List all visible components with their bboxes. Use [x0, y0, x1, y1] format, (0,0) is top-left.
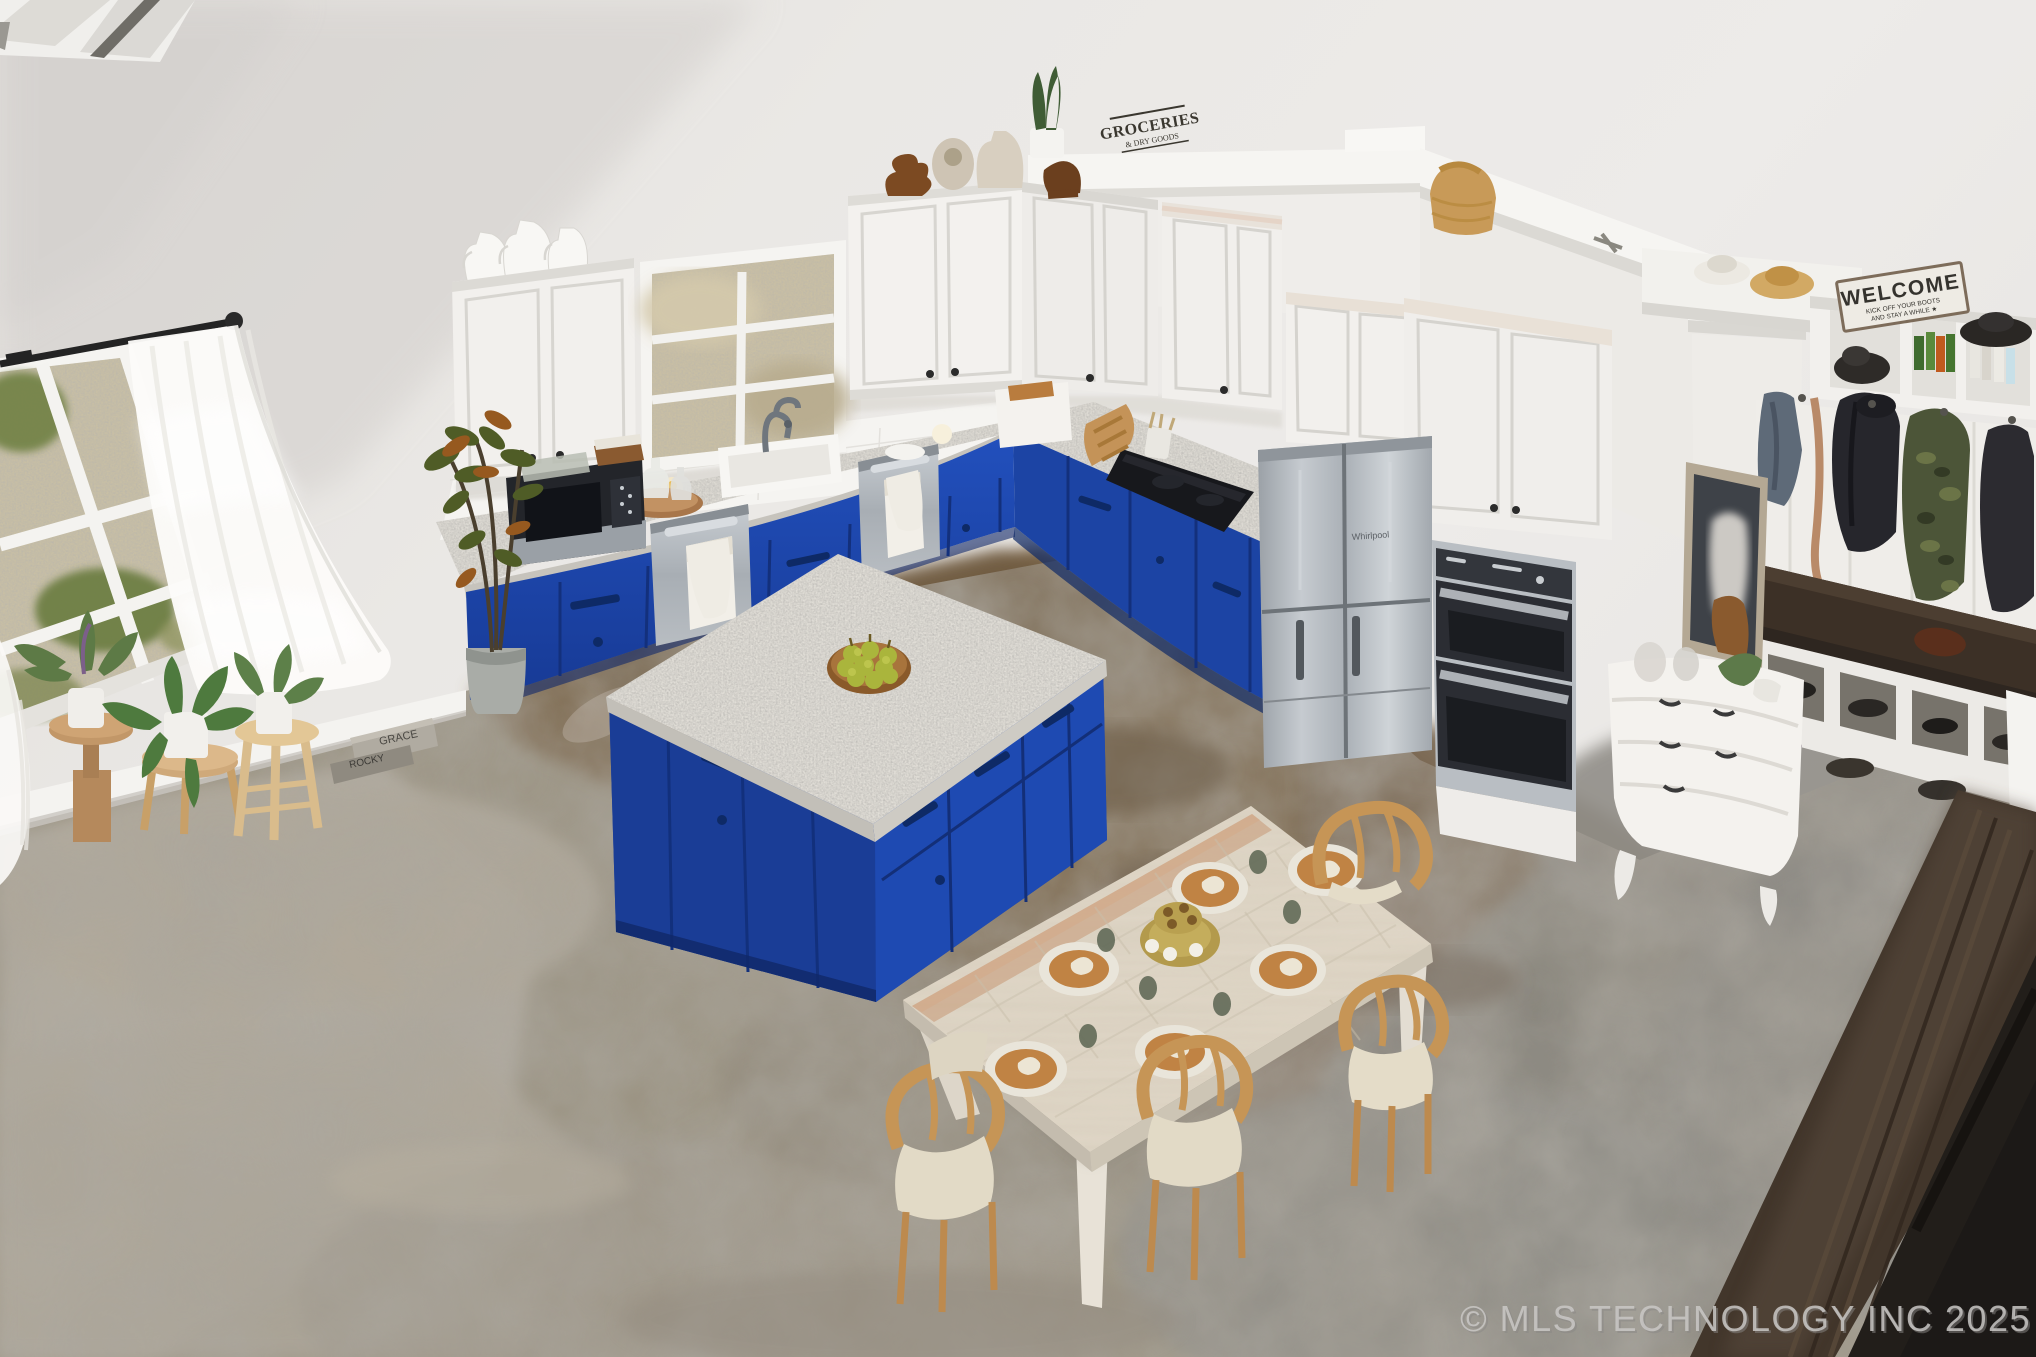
svg-text:© MLS TECHNOLOGY INC 2025: © MLS TECHNOLOGY INC 2025 — [1460, 1298, 2031, 1339]
